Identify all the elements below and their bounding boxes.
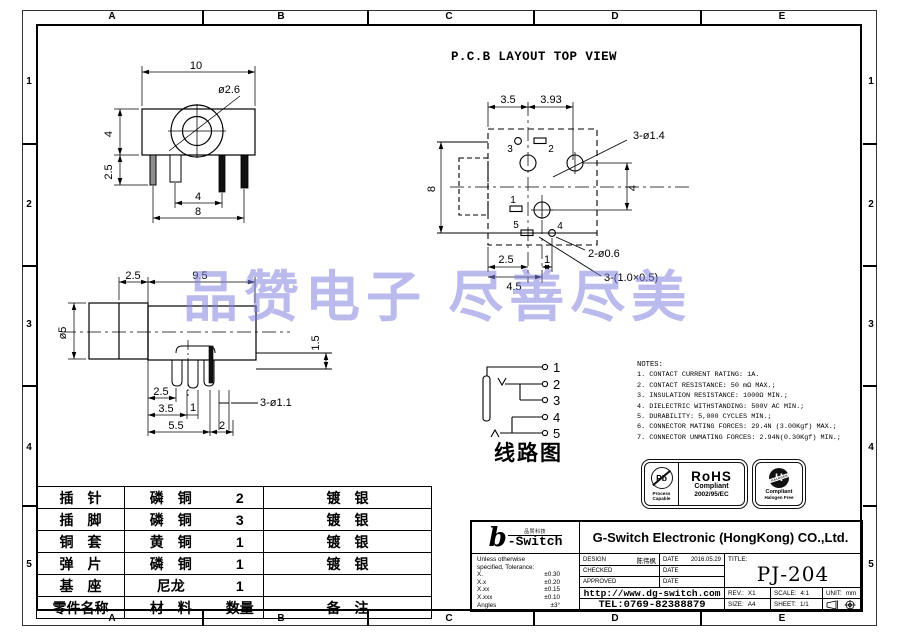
drawing-sheet: { "border": { "cols": ["A", "B", "C", "D…: [0, 0, 900, 636]
dim-label: 2.5: [125, 270, 140, 282]
front-view-outlines: [142, 105, 255, 192]
hole-callout: 3-ø1.1: [260, 397, 292, 409]
dim-label: 2.5: [498, 254, 513, 266]
dim-label: 3.5: [500, 94, 515, 106]
pad-number: 2: [548, 144, 554, 155]
pad-number: 1: [510, 195, 516, 206]
dim-label: 2: [219, 420, 225, 432]
schematic-drawing: [483, 364, 548, 437]
side-view-outlines: [89, 303, 332, 388]
dim-label: ø5: [57, 327, 69, 340]
pad-number: 3: [507, 144, 513, 155]
terminal-number: 3: [553, 393, 560, 408]
dim-label: ø2.6: [218, 84, 240, 96]
hole-callout: 3-ø1.4: [633, 130, 665, 142]
dim-label: 9.5: [192, 270, 207, 282]
technical-drawing-layer: 10 ø2.6 4 2.5 4 8 3.5 3.93 8: [0, 0, 900, 636]
dim-label: 3.93: [540, 94, 561, 106]
dim-label: 1: [190, 402, 196, 414]
dim-label: 1.5: [310, 335, 322, 350]
dim-label: 4: [195, 191, 201, 203]
dim-label: 3.5: [158, 403, 173, 415]
terminal-number: 4: [553, 410, 560, 425]
dim-label: 4: [103, 131, 115, 137]
dim-label: 8: [426, 186, 438, 192]
pad-number: 4: [557, 221, 563, 232]
terminal-number: 1: [553, 360, 560, 375]
dim-label: 2.5: [103, 164, 115, 179]
dim-label: 10: [190, 60, 202, 72]
dim-label: 2.5: [153, 386, 168, 398]
pad-number: 5: [513, 220, 519, 231]
dim-label: 1: [544, 254, 550, 266]
terminal-number: 2: [553, 377, 560, 392]
dim-label: 4.5: [506, 281, 521, 293]
dim-label: 4: [627, 185, 639, 191]
dim-label: 5.5: [168, 420, 183, 432]
slot-callout: 3-(1.0×0.5): [604, 272, 658, 284]
terminal-number: 5: [553, 426, 560, 441]
hole-callout: 2-ø0.6: [588, 248, 620, 260]
dim-label: 8: [195, 206, 201, 218]
